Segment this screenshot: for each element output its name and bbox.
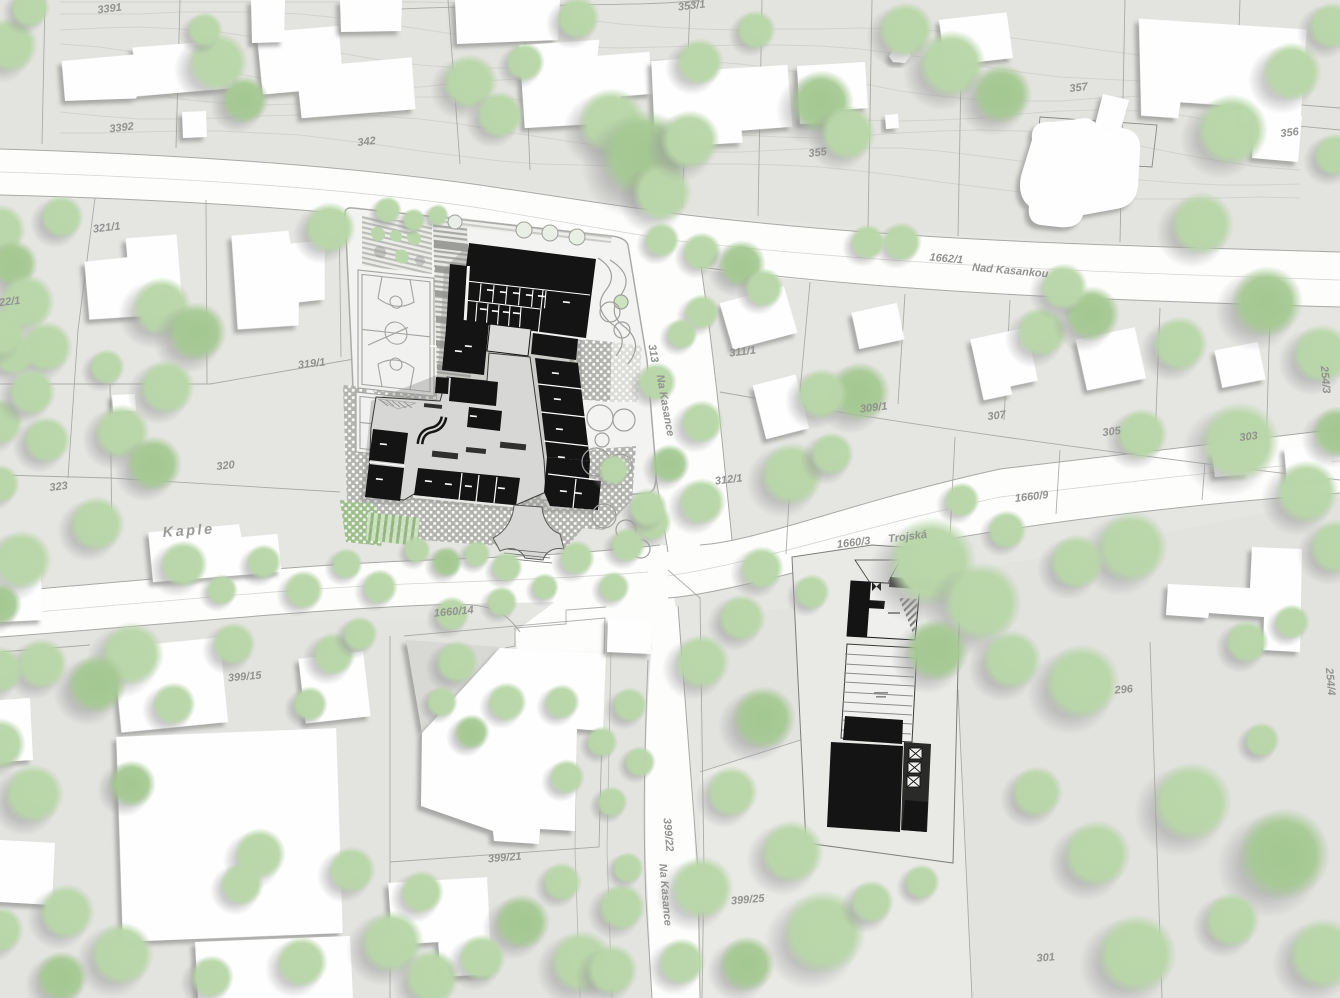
svg-text:305: 305 [1102, 425, 1123, 439]
svg-text:320: 320 [216, 459, 237, 473]
svg-text:254/4: 254/4 [1323, 667, 1337, 696]
svg-text:355: 355 [808, 146, 829, 160]
svg-text:356: 356 [1280, 126, 1301, 140]
svg-text:307: 307 [987, 409, 1008, 423]
svg-text:342: 342 [357, 135, 377, 149]
svg-text:296: 296 [1113, 683, 1134, 697]
svg-text:301: 301 [1036, 951, 1055, 965]
svg-text:254/3: 254/3 [1318, 365, 1332, 394]
svg-text:303: 303 [1239, 430, 1259, 444]
svg-text:323: 323 [49, 480, 69, 494]
svg-text:357: 357 [1069, 81, 1090, 95]
